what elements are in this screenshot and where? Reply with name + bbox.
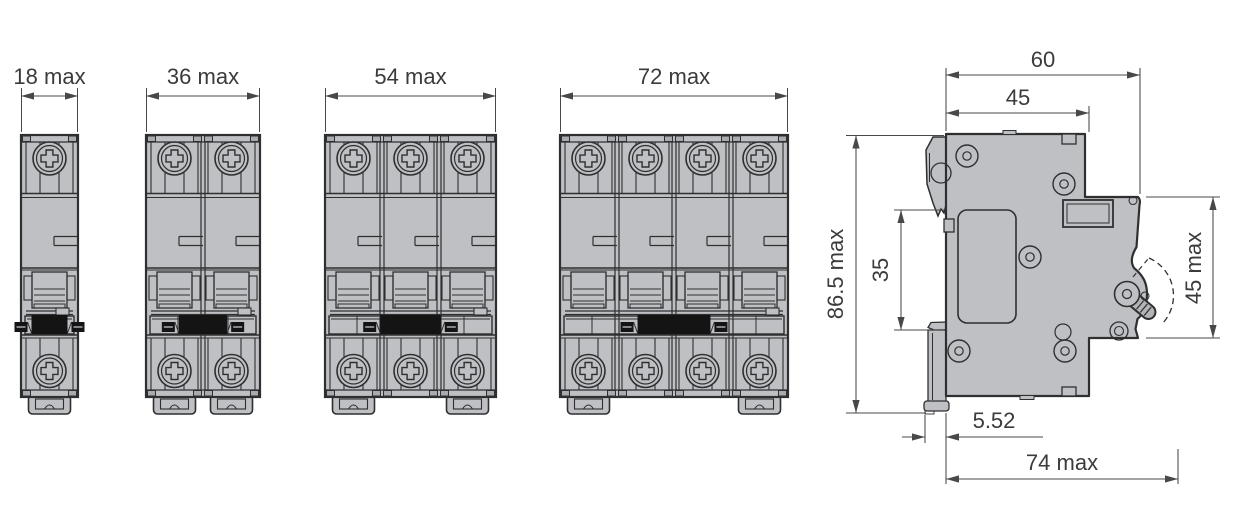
terminal-screw-bottom bbox=[572, 355, 605, 388]
terminal-screw-bottom bbox=[686, 355, 719, 388]
width-dimension: 72 max bbox=[560, 64, 788, 132]
dimension-arrow bbox=[897, 317, 904, 330]
dimension-arrow bbox=[946, 109, 959, 116]
dimension-arrow bbox=[852, 400, 859, 413]
dimension-arrow bbox=[483, 92, 496, 99]
dimension-arrow bbox=[897, 210, 904, 223]
terminal-screw-bottom bbox=[743, 355, 776, 388]
front-dim-label-4p: 72 max bbox=[638, 64, 710, 89]
dimension-arrow bbox=[1165, 475, 1178, 482]
dimension-arrow bbox=[1076, 109, 1089, 116]
terminal-screw-bottom bbox=[451, 355, 484, 388]
breaker-side-body bbox=[946, 134, 1147, 396]
side-dim-60: 60 bbox=[1031, 47, 1055, 72]
terminal-screw-top bbox=[572, 142, 605, 175]
dimension-arrow bbox=[146, 92, 159, 99]
front-dim-label-3p: 54 max bbox=[374, 64, 446, 89]
dimension-arrow bbox=[1209, 197, 1216, 210]
side-dim-35: 35 bbox=[868, 258, 893, 282]
toggle-handle-front bbox=[380, 315, 441, 334]
width-dimension: 18 max bbox=[13, 64, 85, 132]
terminal-screw-top bbox=[629, 142, 662, 175]
dimension-arrow bbox=[912, 433, 925, 440]
front-view-3-pole: 54 max bbox=[325, 64, 496, 414]
dimension-arrow bbox=[325, 92, 338, 99]
terminal-screw-top bbox=[33, 142, 66, 175]
front-dim-label-2p: 36 max bbox=[167, 64, 239, 89]
front-view-4-pole: 72 max bbox=[560, 64, 788, 414]
terminal-screw-top bbox=[337, 142, 370, 175]
side-dim-45-max: 45 max bbox=[1181, 232, 1206, 304]
terminal-screw-top bbox=[451, 142, 484, 175]
terminal-screw-bottom bbox=[33, 355, 66, 388]
terminal-screw-bottom bbox=[215, 355, 248, 388]
side-view: 604586.5 max3545 max5.5274 max bbox=[823, 47, 1220, 484]
toggle-handle-front bbox=[638, 315, 711, 334]
terminal-screw-top bbox=[743, 142, 776, 175]
dimension-arrow bbox=[946, 475, 959, 482]
dimension-arrow bbox=[946, 433, 959, 440]
din-hook-top bbox=[926, 137, 946, 216]
dimension-arrow bbox=[560, 92, 573, 99]
dimension-arrow bbox=[247, 92, 260, 99]
side-dim-74-max: 74 max bbox=[1026, 450, 1098, 475]
terminal-screw-top bbox=[158, 142, 191, 175]
toggle-handle-front bbox=[32, 315, 68, 334]
width-dimension: 36 max bbox=[146, 64, 260, 132]
side-dim-45: 45 bbox=[1006, 85, 1030, 110]
side-dim-86-5-max: 86.5 max bbox=[823, 229, 848, 320]
terminal-screw-bottom bbox=[394, 355, 427, 388]
front-dim-label-1p: 18 max bbox=[13, 64, 85, 89]
terminal-screw-bottom bbox=[158, 355, 191, 388]
dimension-arrow bbox=[946, 71, 959, 78]
dimension-arrow bbox=[1209, 325, 1216, 338]
dimension-arrow bbox=[775, 92, 788, 99]
dimension-arrow bbox=[21, 92, 34, 99]
dimension-arrow bbox=[852, 136, 859, 149]
front-view-1-pole: 18 max bbox=[13, 64, 85, 414]
toggle-handle-front bbox=[179, 315, 227, 334]
terminal-screw-bottom bbox=[629, 355, 662, 388]
terminal-screw-top bbox=[686, 142, 719, 175]
side-dim-5-52: 5.52 bbox=[973, 408, 1016, 433]
terminal-screw-top bbox=[215, 142, 248, 175]
terminal-screw-top bbox=[394, 142, 427, 175]
front-view-2-pole: 36 max bbox=[146, 64, 260, 414]
dimension-arrow bbox=[1127, 71, 1140, 78]
technical-drawing-page: 18 max36 max54 max72 max604586.5 max3545… bbox=[0, 0, 1235, 525]
width-dimension: 54 max bbox=[325, 64, 496, 132]
breaker-dimension-drawing: 18 max36 max54 max72 max604586.5 max3545… bbox=[0, 0, 1235, 525]
dimension-arrow bbox=[65, 92, 78, 99]
terminal-screw-bottom bbox=[337, 355, 370, 388]
